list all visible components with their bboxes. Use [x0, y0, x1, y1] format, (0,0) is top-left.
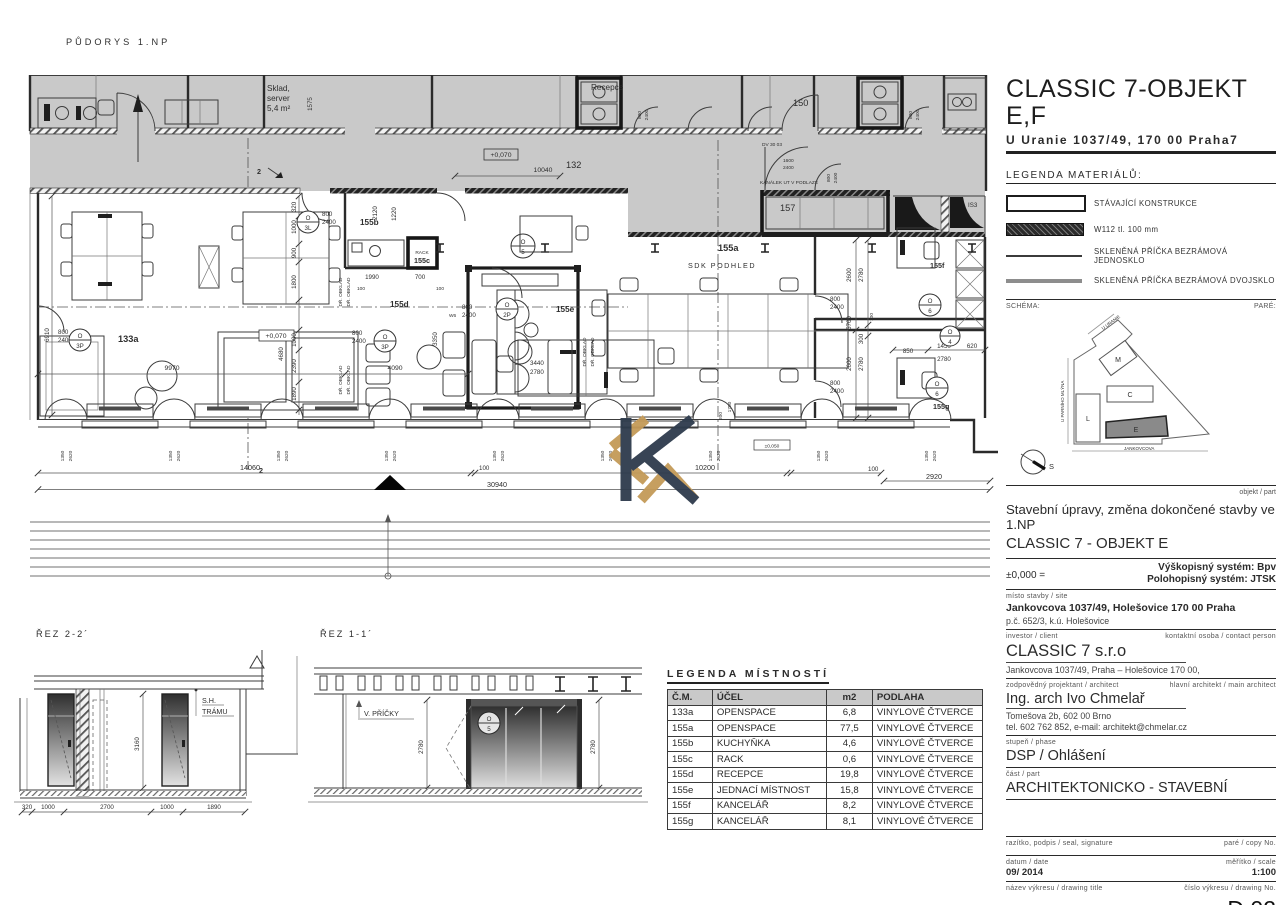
svg-text:2620: 2620 [716, 450, 722, 461]
room-label-recepce: Recepce [591, 83, 624, 92]
svg-text:O: O [78, 333, 83, 340]
architect-contact: tel. 602 762 852, e-mail: architekt@chme… [1006, 722, 1276, 732]
svg-text:O: O [383, 334, 388, 341]
date-label: datum / date [1006, 859, 1049, 866]
svg-text:2780: 2780 [418, 740, 425, 754]
table-row: 133aOPENSPACE6,8VINYLOVÉ ČTVERCE [668, 705, 983, 721]
steel-beam-symbols [555, 677, 631, 691]
site-label: místo stavby / site [1006, 593, 1276, 600]
svg-text:V. PŘÍČKY: V. PŘÍČKY [364, 709, 399, 718]
svg-text:O: O [521, 239, 526, 246]
svg-text:1350: 1350 [924, 450, 930, 461]
svg-text:320: 320 [22, 804, 33, 811]
elevation-ref: ±0,000 = [1006, 562, 1045, 581]
svg-text:2920: 2920 [926, 472, 942, 481]
svg-text:L: L [1086, 416, 1090, 423]
table-header-row: Č.M. ÚČEL m2 PODLAHA [668, 690, 983, 706]
subject-line1: Stavební úpravy, změna dokončené stavby … [1006, 502, 1276, 532]
room-label-133a: 133a [118, 334, 139, 344]
svg-text:1350: 1350 [600, 450, 606, 461]
svg-text:800: 800 [352, 330, 363, 337]
room-label-155e: 155e [556, 305, 575, 314]
section-door [48, 694, 74, 786]
pare-label: PARÉ: [1254, 303, 1276, 310]
drawing-number: D.02 [1227, 896, 1276, 905]
bottom-dimensions: 14060 100 10200 100 2920 30940 [35, 463, 993, 493]
svg-text:2620: 2620 [284, 450, 290, 461]
scale-value: 1:100 [1252, 867, 1276, 878]
svg-text:2400: 2400 [830, 304, 844, 311]
svg-text:100: 100 [357, 286, 365, 292]
svg-text:800: 800 [826, 174, 832, 182]
glass-partition: O 5 [466, 699, 582, 790]
svg-text:100: 100 [436, 286, 444, 292]
drawing-no-label: číslo výkresu / drawing No. [1184, 885, 1276, 892]
table-row: 155cRACK0,6VINYLOVÉ ČTVERCE [668, 752, 983, 768]
svg-text:O: O [935, 381, 940, 388]
svg-text:320: 320 [291, 201, 298, 212]
svg-text:2780: 2780 [530, 369, 544, 376]
svg-text:1800: 1800 [291, 275, 298, 289]
svg-text:800: 800 [462, 304, 473, 311]
table-row: 155aOPENSPACE77,5VINYLOVÉ ČTVERCE [668, 721, 983, 737]
section-rez-1-1: ŘEZ 1-1´ V. PŘÍČKY 2780 2780 [308, 629, 648, 802]
copy-label: paré / copy No. [1224, 840, 1276, 847]
svg-text:2620: 2620 [932, 450, 938, 461]
section-door [162, 694, 188, 786]
swatch-existing-construction [1006, 195, 1086, 212]
scale-label: měřítko / scale [1226, 859, 1276, 866]
svg-text:C: C [1127, 392, 1132, 399]
site-parcel: p.č. 652/3, k.ú. Holešovice [1006, 616, 1276, 626]
svg-text:3440: 3440 [530, 360, 544, 367]
svg-text:1000: 1000 [41, 804, 55, 811]
level-mark-050: ±0,050 [765, 444, 780, 450]
objekt-part-label: objekt / part [1006, 489, 1276, 496]
svg-text:2390: 2390 [291, 359, 298, 373]
svg-text:4: 4 [948, 339, 952, 346]
svg-text:2400: 2400 [462, 312, 476, 319]
svg-text:850: 850 [903, 348, 914, 355]
svg-text:620: 620 [967, 343, 978, 350]
phase-label: stupeň / phase [1006, 739, 1276, 746]
room-label-132: 132 [566, 160, 581, 170]
svg-text:1350: 1350 [492, 450, 498, 461]
svg-text:2620: 2620 [392, 450, 398, 461]
section-rez-2-2: ŘEZ 2-2´ 3160 S.H. TRÁMU [14, 629, 298, 815]
compass: S [1021, 450, 1054, 474]
contact-label: kontaktní osoba / contact person [1165, 633, 1276, 640]
svg-text:2120: 2120 [372, 206, 379, 220]
svg-text:2600: 2600 [846, 357, 853, 371]
svg-text:800: 800 [58, 329, 69, 336]
svg-text:1000: 1000 [291, 333, 298, 347]
table-row: 155fKANCELÁŘ8,2VINYLOVÉ ČTVERCE [668, 798, 983, 814]
svg-text:6: 6 [935, 391, 939, 398]
room-label-155d: 155d [390, 300, 409, 309]
svg-text:O: O [928, 298, 933, 305]
svg-text:2620: 2620 [68, 450, 74, 461]
svg-text:5700: 5700 [846, 316, 853, 330]
svg-text:1350: 1350 [60, 450, 66, 461]
part-label: část / part [1006, 771, 1276, 778]
swatch-glass-double [1006, 279, 1082, 283]
door-type-w6: W6 [449, 313, 457, 319]
level-mark-070: +0,070 [491, 152, 512, 159]
room-label-150: 150 [793, 98, 808, 108]
street-jankovcova: JANKOVCOVA [1124, 446, 1154, 451]
table-row: 155dRECEPCE19,8VINYLOVÉ ČTVERCE [668, 767, 983, 783]
drawing-title-label: název výkresu / drawing title [1006, 885, 1103, 892]
svg-text:9970: 9970 [164, 365, 179, 372]
investor-address: Jankovcova 1037/49, Praha – Holešovice 1… [1006, 665, 1276, 675]
dim-10040: 10040 [534, 167, 553, 174]
svg-text:10200: 10200 [695, 463, 715, 472]
svg-text:100: 100 [479, 465, 490, 472]
svg-text:2780: 2780 [937, 356, 951, 363]
svg-text:4090: 4090 [387, 365, 402, 372]
date-value: 09/ 2014 [1006, 867, 1043, 878]
svg-text:O: O [487, 716, 492, 723]
svg-text:3160: 3160 [134, 737, 141, 751]
room-label-155f: 155f [930, 261, 945, 270]
svg-text:1220: 1220 [391, 207, 398, 221]
svg-text:3L: 3L [305, 225, 312, 232]
room-legend: LEGENDA MÍSTNOSTÍ Č.M. ÚČEL m2 PODLAHA 1… [667, 664, 983, 830]
svg-text:4680: 4680 [278, 347, 285, 361]
svg-text:M: M [1115, 357, 1121, 364]
svg-text:O: O [306, 215, 311, 222]
svg-text:+0,070: +0,070 [266, 333, 287, 340]
svg-text:14060: 14060 [240, 463, 260, 472]
investor-label: investor / client [1006, 633, 1058, 640]
svg-text:5,4 m²: 5,4 m² [267, 104, 290, 113]
room-legend-title: LEGENDA MÍSTNOSTÍ [667, 668, 829, 684]
svg-text:server: server [267, 94, 290, 103]
svg-text:O: O [505, 302, 510, 309]
site-address: Jankovcova 1037/49, Holešovice 170 00 Pr… [1006, 602, 1276, 614]
svg-text:3350: 3350 [432, 332, 439, 346]
svg-text:2600: 2600 [846, 268, 853, 282]
drawing-sheet: PŮDORYS 1.NP [0, 0, 1280, 905]
plan-title: PŮDORYS 1.NP [66, 36, 170, 47]
room-label-sklad: Sklad, [267, 84, 290, 93]
svg-text:2400: 2400 [915, 109, 921, 120]
svg-text:800: 800 [637, 111, 643, 119]
legend-item-w112: W112 tl. 100 mm [1006, 223, 1276, 236]
svg-text:2620: 2620 [500, 450, 506, 461]
svg-text:2780: 2780 [590, 740, 597, 754]
swatch-w112-wall [1006, 223, 1084, 236]
svg-text:6910: 6910 [44, 328, 51, 342]
svg-text:1350: 1350 [384, 450, 390, 461]
svg-text:E: E [1134, 427, 1139, 434]
seal-label: razítko, podpis / seal, signature [1006, 840, 1113, 847]
svg-text:1350: 1350 [276, 450, 282, 461]
logo-watermark [612, 418, 696, 501]
svg-text:100: 100 [869, 313, 875, 321]
legend-item-existing: STÁVAJÍCÍ KONSTRUKCE [1006, 195, 1276, 212]
main-architect-label: hlavní architekt / main architect [1170, 682, 1276, 689]
terrain-lines [30, 514, 990, 579]
architect-name: Ing. arch Ivo Chmelař [1006, 691, 1186, 709]
street-u-parniho-mlyna: U PARNÍHO MLÝNA [1059, 381, 1065, 422]
svg-text:2400: 2400 [830, 388, 844, 395]
svg-text:3P: 3P [381, 344, 389, 351]
svg-text:2780: 2780 [858, 268, 865, 282]
svg-text:1600: 1600 [783, 158, 794, 164]
svg-text:2P: 2P [503, 312, 511, 319]
title-block: CLASSIC 7-OBJEKT E,F U Uranie 1037/49, 1… [1006, 76, 1276, 905]
svg-text:3P: 3P [76, 343, 84, 350]
phase-value: DSP / Ohlášení [1006, 748, 1276, 764]
svg-text:1990: 1990 [365, 274, 379, 281]
section-mark-2: 2 [257, 167, 261, 176]
swatch-glass-single [1006, 255, 1082, 257]
schema-section: SCHÉMA: PARÉ: M C L E U URANIE U PARNÍHO… [1006, 299, 1276, 496]
position-system: Polohopisný systém: JTSK [1147, 574, 1276, 586]
svg-text:S: S [1049, 462, 1054, 471]
svg-text:2620: 2620 [176, 450, 182, 461]
material-legend-title: LEGENDA MATERIÁLŮ: [1006, 170, 1276, 184]
svg-text:1000: 1000 [160, 804, 174, 811]
svg-text:2400: 2400 [783, 165, 794, 171]
svg-text:2400: 2400 [352, 338, 366, 345]
height-system: Výškopisný systém: Bpv [1147, 562, 1276, 574]
site-plan-schema: M C L E U URANIE U PARNÍHO MLÝNA JANKOVC… [1006, 310, 1274, 482]
svg-text:O: O [948, 329, 953, 336]
room-label-157: 157 [780, 203, 795, 213]
table-row: 155eJEDNACÍ MÍSTNOST15,8VINYLOVÉ ČTVERCE [668, 783, 983, 799]
floor-channel-note: KANÁLEK UT V PODLAZE [760, 179, 818, 186]
section-title: ŘEZ 2-2´ [36, 629, 89, 639]
svg-text:30940: 30940 [487, 480, 507, 489]
project-address: U Uranie 1037/49, 170 00 Praha7 [1006, 133, 1276, 147]
svg-text:200: 200 [718, 412, 724, 420]
entrance-marker [374, 475, 406, 490]
svg-text:300: 300 [858, 333, 865, 344]
svg-text:2400: 2400 [644, 109, 650, 120]
svg-text:1350: 1350 [708, 450, 714, 461]
room-label-155g: 155g [933, 402, 949, 411]
dim-1575: 1575 [307, 97, 314, 111]
svg-text:100: 100 [868, 466, 879, 473]
svg-text:1890: 1890 [291, 387, 298, 401]
svg-text:2700: 2700 [100, 804, 114, 811]
part-value: ARCHITEKTONICKO - STAVEBNÍ [1006, 780, 1276, 796]
project-title: CLASSIC 7-OBJEKT E,F [1006, 76, 1276, 130]
svg-text:800: 800 [908, 111, 914, 119]
svg-text:1350: 1350 [816, 450, 822, 461]
table-row: 155gKANCELÁŘ8,1VINYLOVÉ ČTVERCE [668, 814, 983, 830]
room-label-155c: 155c [414, 256, 430, 265]
svg-text:2780: 2780 [858, 357, 865, 371]
ceiling-joists [320, 676, 533, 690]
svg-text:TRÁMU: TRÁMU [202, 707, 228, 716]
legend-item-glass-single: SKLENĚNÁ PŘÍČKA BEZRÁMOVÁ JEDNOSKLO [1006, 247, 1276, 265]
designer-label: zodpovědný projektant / architect [1006, 682, 1119, 689]
table-row: 155bKUCHYŇKA4,6VINYLOVÉ ČTVERCE [668, 736, 983, 752]
svg-text:800: 800 [830, 296, 841, 303]
ceiling-note: SDK PODHLED [688, 261, 756, 270]
svg-text:1890: 1890 [207, 804, 221, 811]
section-title: ŘEZ 1-1´ [320, 629, 373, 639]
svg-text:6: 6 [928, 308, 932, 315]
svg-text:700: 700 [415, 274, 426, 281]
svg-text:900: 900 [291, 247, 298, 258]
svg-text:5: 5 [487, 726, 491, 733]
legend-item-glass-double: SKLENĚNÁ PŘÍČKA BEZRÁMOVÁ DVOJSKLO [1006, 276, 1276, 285]
svg-text:800: 800 [322, 211, 333, 218]
schema-label: SCHÉMA: [1006, 303, 1040, 310]
svg-text:1350: 1350 [168, 450, 174, 461]
architect-address: Tomešova 2b, 602 00 Brno [1006, 711, 1276, 721]
subject-line2: CLASSIC 7 - OBJEKT E [1006, 535, 1276, 552]
window-dim-labels: 13502620 13502620 13502620 13502620 1350… [60, 450, 938, 461]
svg-text:5: 5 [521, 249, 525, 256]
room-label-is3: IS3 [968, 202, 978, 209]
svg-text:2400: 2400 [322, 219, 336, 226]
svg-text:2400: 2400 [833, 172, 839, 183]
svg-text:800: 800 [830, 380, 841, 387]
svg-text:S.H.: S.H. [202, 696, 216, 705]
room-label-155a: 155a [718, 243, 739, 253]
svg-text:2620: 2620 [824, 450, 830, 461]
room-legend-table: Č.M. ÚČEL m2 PODLAHA 133aOPENSPACE6,8VIN… [667, 689, 983, 830]
investor-name: CLASSIC 7 s.r.o [1006, 642, 1186, 663]
